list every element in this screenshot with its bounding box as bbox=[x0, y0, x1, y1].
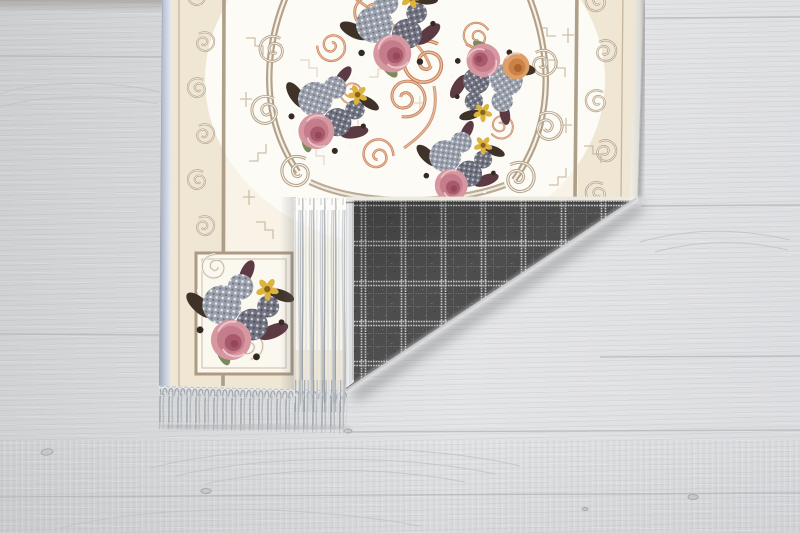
flap-fringe-shadow bbox=[280, 197, 296, 389]
flap-fringe bbox=[294, 198, 346, 412]
product-photo-rug bbox=[0, 0, 800, 533]
floor-top-shade bbox=[0, 0, 164, 13]
peach-rose bbox=[503, 53, 530, 80]
rug-scene bbox=[0, 0, 800, 533]
rug-binding-left bbox=[159, 0, 172, 386]
folded-corner-flap bbox=[294, 197, 638, 412]
floor-bottom-striation bbox=[0, 440, 800, 533]
